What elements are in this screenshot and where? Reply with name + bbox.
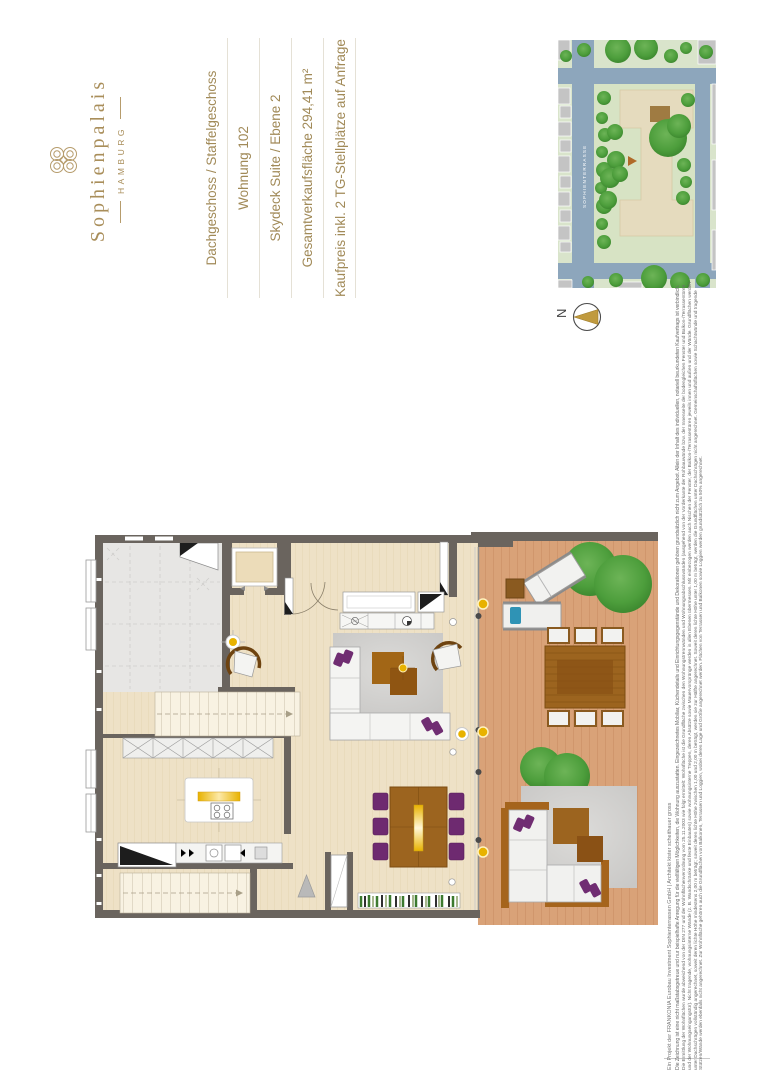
dining-set — [373, 787, 464, 867]
sun-lounger — [503, 603, 561, 630]
spot-light — [450, 619, 457, 626]
brand-ornament-icon — [47, 140, 81, 180]
divider — [259, 38, 260, 298]
brand-logo: Sophienpalais HAMBURG — [1, 75, 171, 245]
divider — [323, 38, 324, 298]
north-compass: N — [550, 294, 610, 340]
cooktop-glow — [198, 792, 240, 801]
ceiling-light — [456, 728, 469, 741]
apartment-floor-plan — [85, 522, 665, 927]
hall-door — [331, 855, 347, 907]
outdoor-dining-set — [545, 628, 625, 726]
price-label: Kaufpreis inkl. 2 TG-Stellplätze auf Anf… — [332, 33, 350, 303]
site-location-map: SOPHIENTERRASSE — [558, 40, 716, 288]
pendant-light — [414, 805, 423, 851]
fineprint-block: Ein Projekt der FRANKONIA Eurobau Invest… — [666, 282, 705, 1070]
suite-label: Skydeck Suite / Ebene 2 — [267, 33, 285, 303]
upper-staircase — [155, 692, 300, 736]
attic-room — [103, 543, 222, 692]
towel — [510, 607, 521, 624]
spot-light — [449, 879, 455, 885]
elevator — [232, 548, 277, 591]
divider — [355, 38, 356, 298]
map-street-label: SOPHIENTERRASSE — [582, 145, 587, 208]
floor-plan-sheet: Sophienpalais HAMBURG Dachgeschoss / Sta… — [0, 0, 764, 1080]
brand-city: HAMBURG — [116, 97, 126, 223]
bookshelf — [358, 893, 460, 908]
usage-disclaimer-line: Die Zeichnung ist eine nicht maßstabsget… — [674, 282, 682, 1070]
outdoor-coffee-table — [577, 836, 603, 862]
brand-city-label: HAMBURG — [116, 126, 126, 194]
brand-name: Sophienpalais — [87, 78, 110, 242]
divider — [291, 38, 292, 298]
total-area-label: Gesamtverkaufsfläche 294,41 m² — [299, 33, 317, 303]
lower-staircase — [120, 873, 250, 913]
roof-terrace — [471, 532, 658, 925]
wardrobe-row — [123, 738, 273, 758]
floor-label: Dachgeschoss / Staffelgeschoss — [203, 33, 221, 303]
project-credit-line: Ein Projekt der FRANKONIA Eurobau Invest… — [666, 282, 674, 1070]
pantry-door — [440, 542, 448, 595]
terrace-side-table — [506, 579, 524, 598]
unit-number: Wohnung 102 — [235, 33, 253, 303]
area-calculation-disclaimer: Die Ermittlung der Wohnflächen wurde abw… — [682, 282, 705, 1070]
divider — [227, 38, 228, 298]
compass-north-label: N — [554, 309, 569, 318]
spot-light — [450, 749, 456, 755]
